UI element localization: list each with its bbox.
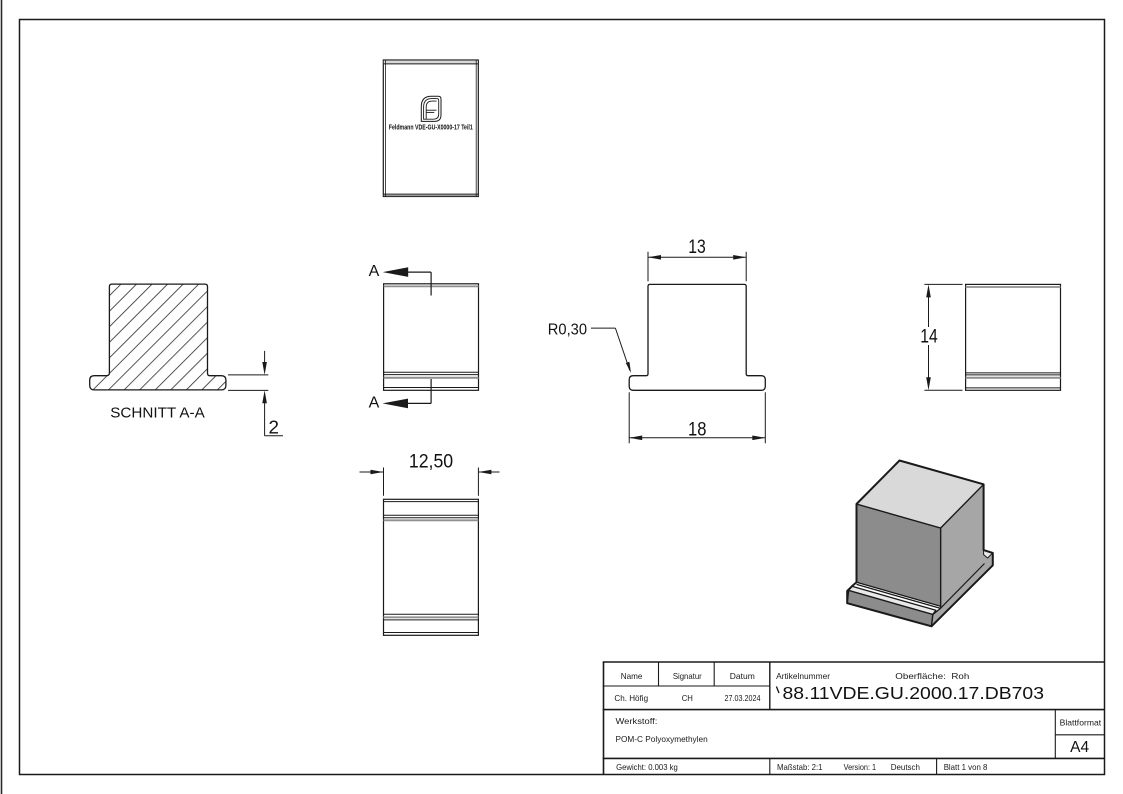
svg-text:Oberfläche: Roh: Oberfläche: Roh [895, 671, 969, 681]
svg-text:Datum: Datum [730, 671, 755, 681]
svg-text:13: 13 [688, 237, 706, 258]
svg-text:A4: A4 [1070, 739, 1089, 756]
svg-text:POM-C Polyoxymethylen: POM-C Polyoxymethylen [616, 734, 709, 744]
svg-text:Feldmann VDE-GU-X0000-17 Teil1: Feldmann VDE-GU-X0000-17 Teil1 [389, 124, 473, 131]
svg-text:Blattformat: Blattformat [1060, 718, 1102, 728]
svg-text:Artikelnummer: Artikelnummer [776, 671, 830, 681]
svg-text:Version: 1: Version: 1 [844, 762, 877, 772]
svg-text:Name: Name [621, 671, 643, 681]
svg-text:R0,30: R0,30 [548, 322, 587, 339]
svg-text:2: 2 [269, 416, 279, 437]
svg-text:27.03.2024: 27.03.2024 [725, 693, 761, 703]
svg-text:Gewicht: 0.003 kg: Gewicht: 0.003 kg [616, 762, 678, 772]
svg-text:CH: CH [682, 693, 693, 703]
svg-text:Deutsch: Deutsch [891, 762, 921, 772]
svg-text:Werkstoff:: Werkstoff: [616, 716, 658, 726]
svg-text:12,50: 12,50 [409, 452, 453, 473]
svg-text:A: A [369, 394, 380, 411]
svg-text:SCHNITT A-A: SCHNITT A-A [110, 405, 205, 422]
svg-text:88.11VDE.GU.2000.17.DB703: 88.11VDE.GU.2000.17.DB703 [783, 683, 1045, 703]
svg-text:Signatur: Signatur [673, 671, 702, 681]
svg-text:A: A [369, 263, 380, 280]
svg-text:18: 18 [688, 420, 706, 441]
svg-text:Blatt 1 von 8: Blatt 1 von 8 [944, 762, 988, 772]
svg-text:14: 14 [920, 327, 938, 348]
svg-text:Ch. Höfig: Ch. Höfig [614, 693, 648, 703]
svg-text:Maßstab: 2:1: Maßstab: 2:1 [777, 762, 823, 772]
